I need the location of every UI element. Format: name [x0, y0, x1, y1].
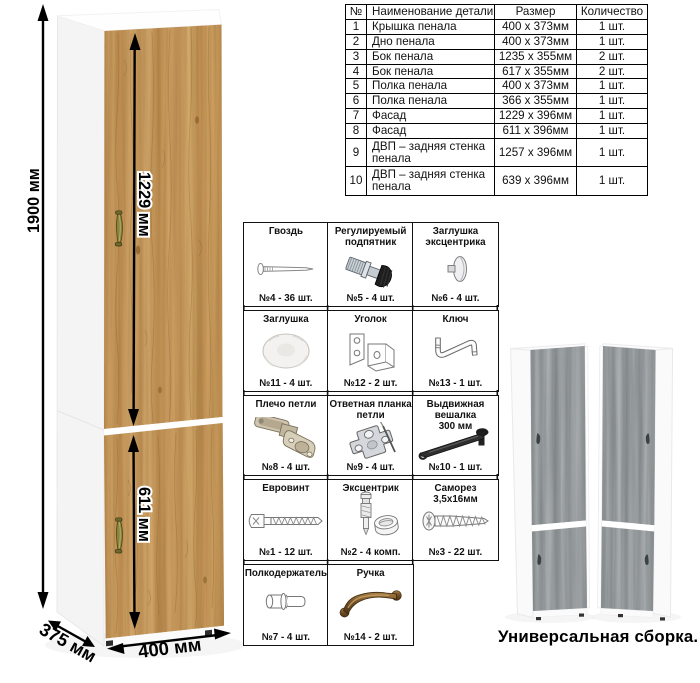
svg-text:611 мм: 611 мм [135, 487, 153, 542]
svg-text:1229 мм: 1229 мм [135, 172, 153, 237]
svg-text:1900 мм: 1900 мм [25, 168, 43, 233]
